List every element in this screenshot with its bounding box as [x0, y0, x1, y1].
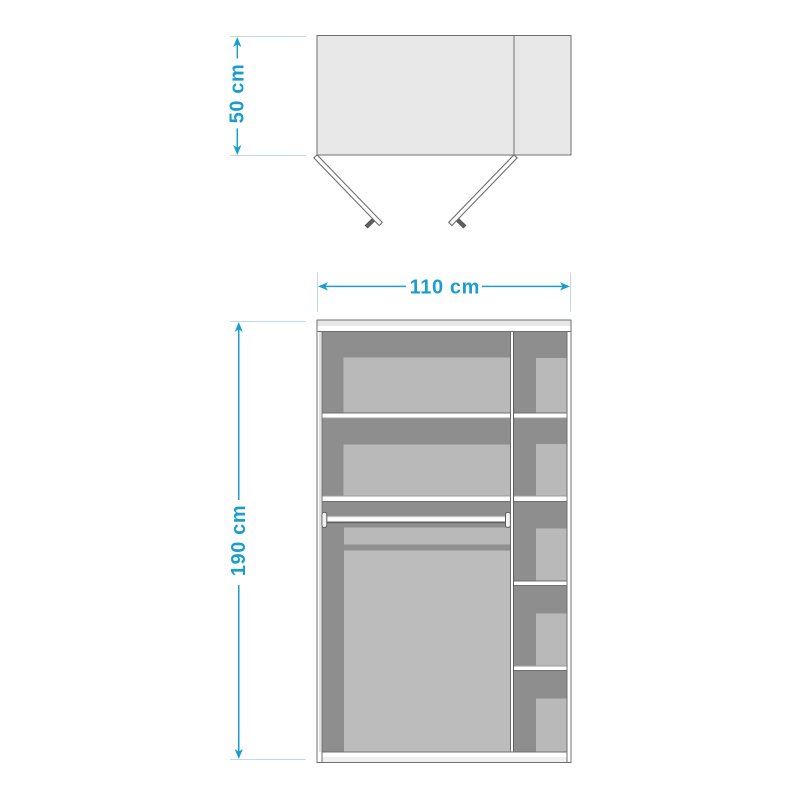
svg-text:190 cm: 190 cm: [228, 505, 250, 576]
svg-text:50 cm: 50 cm: [227, 64, 249, 124]
svg-text:110 cm: 110 cm: [410, 277, 480, 299]
